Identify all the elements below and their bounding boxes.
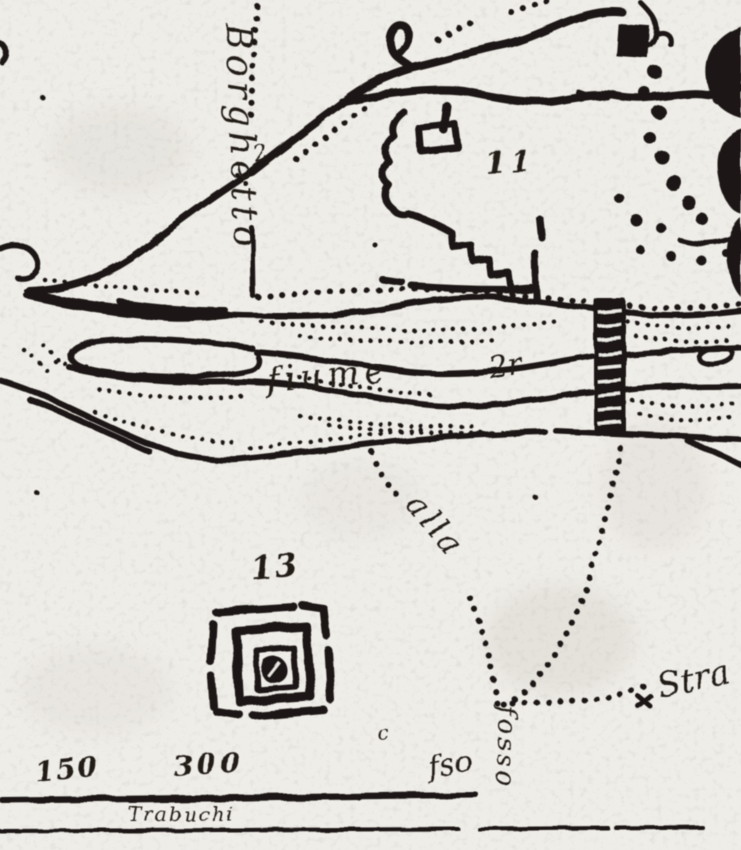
label-river-flourish: 2r bbox=[485, 346, 526, 386]
map-canvas: Borghetto fiume 2r alla fosso fso Stra 2… bbox=[0, 0, 741, 850]
number-site-11: 11 bbox=[485, 144, 537, 182]
label-small-mark: c bbox=[376, 720, 389, 745]
label-route-fosso: fosso bbox=[489, 704, 522, 790]
number-site-13: 13 bbox=[249, 545, 301, 588]
map-page: Borghetto fiume 2r alla fosso fso Stra 2… bbox=[0, 0, 741, 850]
number-scale-150: 150 bbox=[33, 749, 101, 789]
building-block bbox=[616, 24, 650, 58]
bridge bbox=[594, 298, 626, 436]
label-road-borghetto: Borghetto bbox=[217, 22, 266, 253]
scale-caption: Trabuchi bbox=[128, 802, 235, 826]
number-scale-300: 300 bbox=[172, 745, 245, 783]
